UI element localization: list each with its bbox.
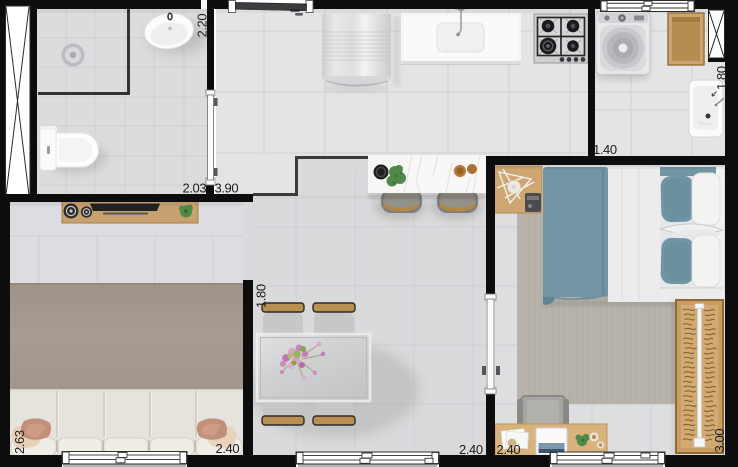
svg-text:2.20: 2.20 [195,14,210,38]
svg-text:2.03: 2.03 [183,181,207,196]
svg-text:3.00: 3.00 [712,429,727,453]
svg-text:2.63: 2.63 [12,430,27,454]
svg-text:2.40: 2.40 [459,442,483,457]
svg-text:1.80: 1.80 [254,284,269,308]
svg-text:1.40: 1.40 [593,142,617,157]
svg-text:2.40: 2.40 [497,442,521,457]
svg-text:1.80: 1.80 [714,66,729,90]
svg-text:2.40: 2.40 [216,441,240,456]
svg-text:3.90: 3.90 [215,181,239,196]
